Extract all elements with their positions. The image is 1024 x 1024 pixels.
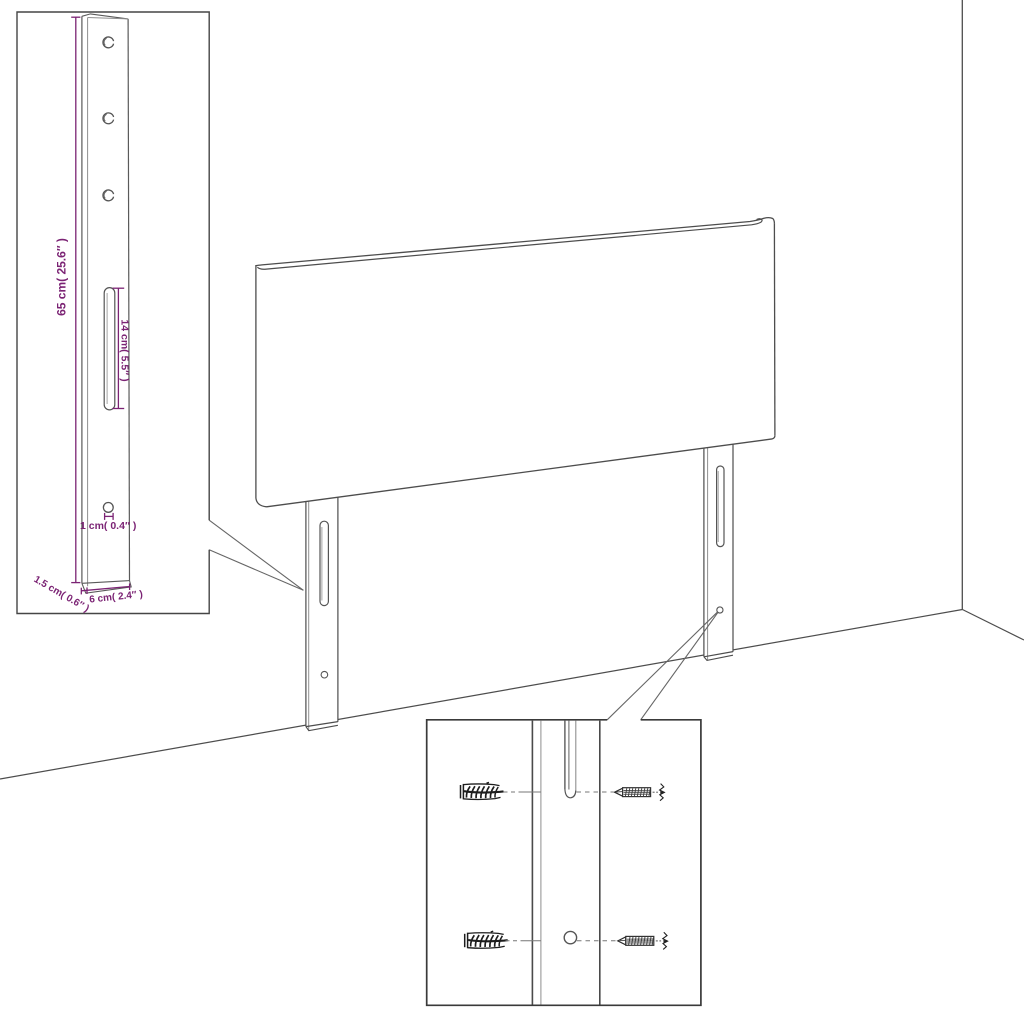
svg-text:65 cm( 25.6″ ): 65 cm( 25.6″ )	[55, 238, 69, 316]
svg-text:14 cm( 5.5″ ): 14 cm( 5.5″ )	[119, 319, 131, 381]
svg-text:1 cm( 0.4″ ): 1 cm( 0.4″ )	[80, 520, 136, 532]
